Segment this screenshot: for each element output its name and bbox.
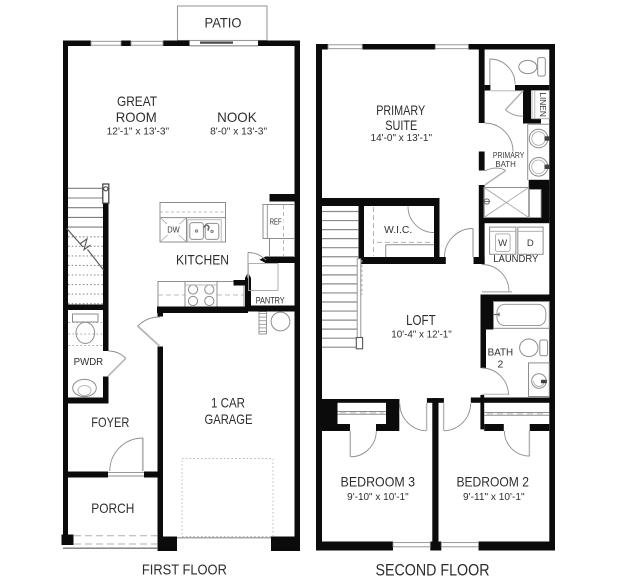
svg-text:ROOM: ROOM bbox=[116, 109, 157, 125]
svg-text:GREAT: GREAT bbox=[117, 93, 157, 109]
svg-text:KITCHEN: KITCHEN bbox=[176, 251, 229, 267]
svg-text:PRIMARY: PRIMARY bbox=[376, 102, 426, 118]
svg-text:W.I.C.: W.I.C. bbox=[384, 225, 412, 236]
svg-text:14'-0" x 13'-1": 14'-0" x 13'-1" bbox=[371, 132, 433, 144]
svg-text:W: W bbox=[498, 238, 508, 249]
svg-text:REF: REF bbox=[270, 216, 282, 226]
svg-text:BATH: BATH bbox=[488, 347, 514, 358]
svg-text:8'-0" x 13'-3": 8'-0" x 13'-3" bbox=[210, 126, 267, 138]
svg-text:LINEN: LINEN bbox=[538, 92, 548, 117]
svg-text:BEDROOM 2: BEDROOM 2 bbox=[456, 474, 529, 490]
svg-text:D: D bbox=[527, 238, 534, 249]
svg-text:GARAGE: GARAGE bbox=[205, 411, 253, 427]
svg-text:NOOK: NOOK bbox=[217, 109, 257, 125]
svg-text:LAUNDRY: LAUNDRY bbox=[493, 254, 538, 265]
svg-text:SUITE: SUITE bbox=[385, 117, 417, 133]
svg-text:FOYER: FOYER bbox=[91, 414, 129, 430]
svg-text:2: 2 bbox=[498, 360, 504, 371]
svg-text:BATH: BATH bbox=[495, 160, 516, 169]
svg-text:9'-10" x 10'-1": 9'-10" x 10'-1" bbox=[347, 491, 409, 503]
svg-text:9'-11" x 10'-1": 9'-11" x 10'-1" bbox=[463, 491, 525, 503]
svg-text:LOFT: LOFT bbox=[406, 312, 436, 329]
svg-text:PANTRY: PANTRY bbox=[256, 296, 285, 307]
svg-text:PORCH: PORCH bbox=[91, 500, 134, 516]
svg-text:DW: DW bbox=[167, 225, 180, 235]
svg-text:FIRST FLOOR: FIRST FLOOR bbox=[142, 563, 227, 579]
svg-text:SECOND FLOOR: SECOND FLOOR bbox=[376, 562, 490, 580]
svg-text:1 CAR: 1 CAR bbox=[211, 395, 245, 411]
svg-text:12'-1" x 13'-3": 12'-1" x 13'-3" bbox=[107, 126, 170, 138]
svg-text:BEDROOM 3: BEDROOM 3 bbox=[341, 474, 416, 490]
svg-text:PATIO: PATIO bbox=[205, 15, 242, 31]
svg-text:10'-4" x 12'-1": 10'-4" x 12'-1" bbox=[391, 328, 452, 340]
svg-text:PWDR: PWDR bbox=[74, 357, 104, 368]
